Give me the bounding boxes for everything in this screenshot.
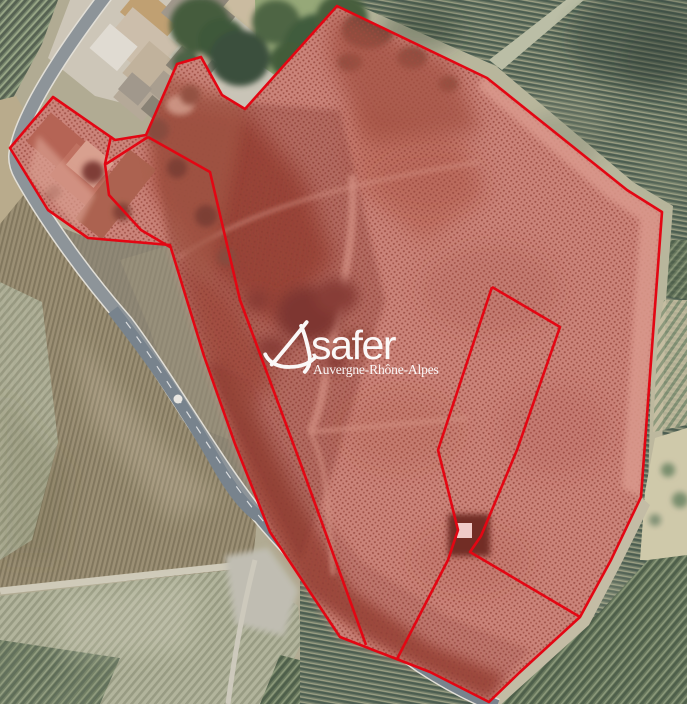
- svg-text:Auvergne-Rhône-Alpes: Auvergne-Rhône-Alpes: [313, 362, 439, 377]
